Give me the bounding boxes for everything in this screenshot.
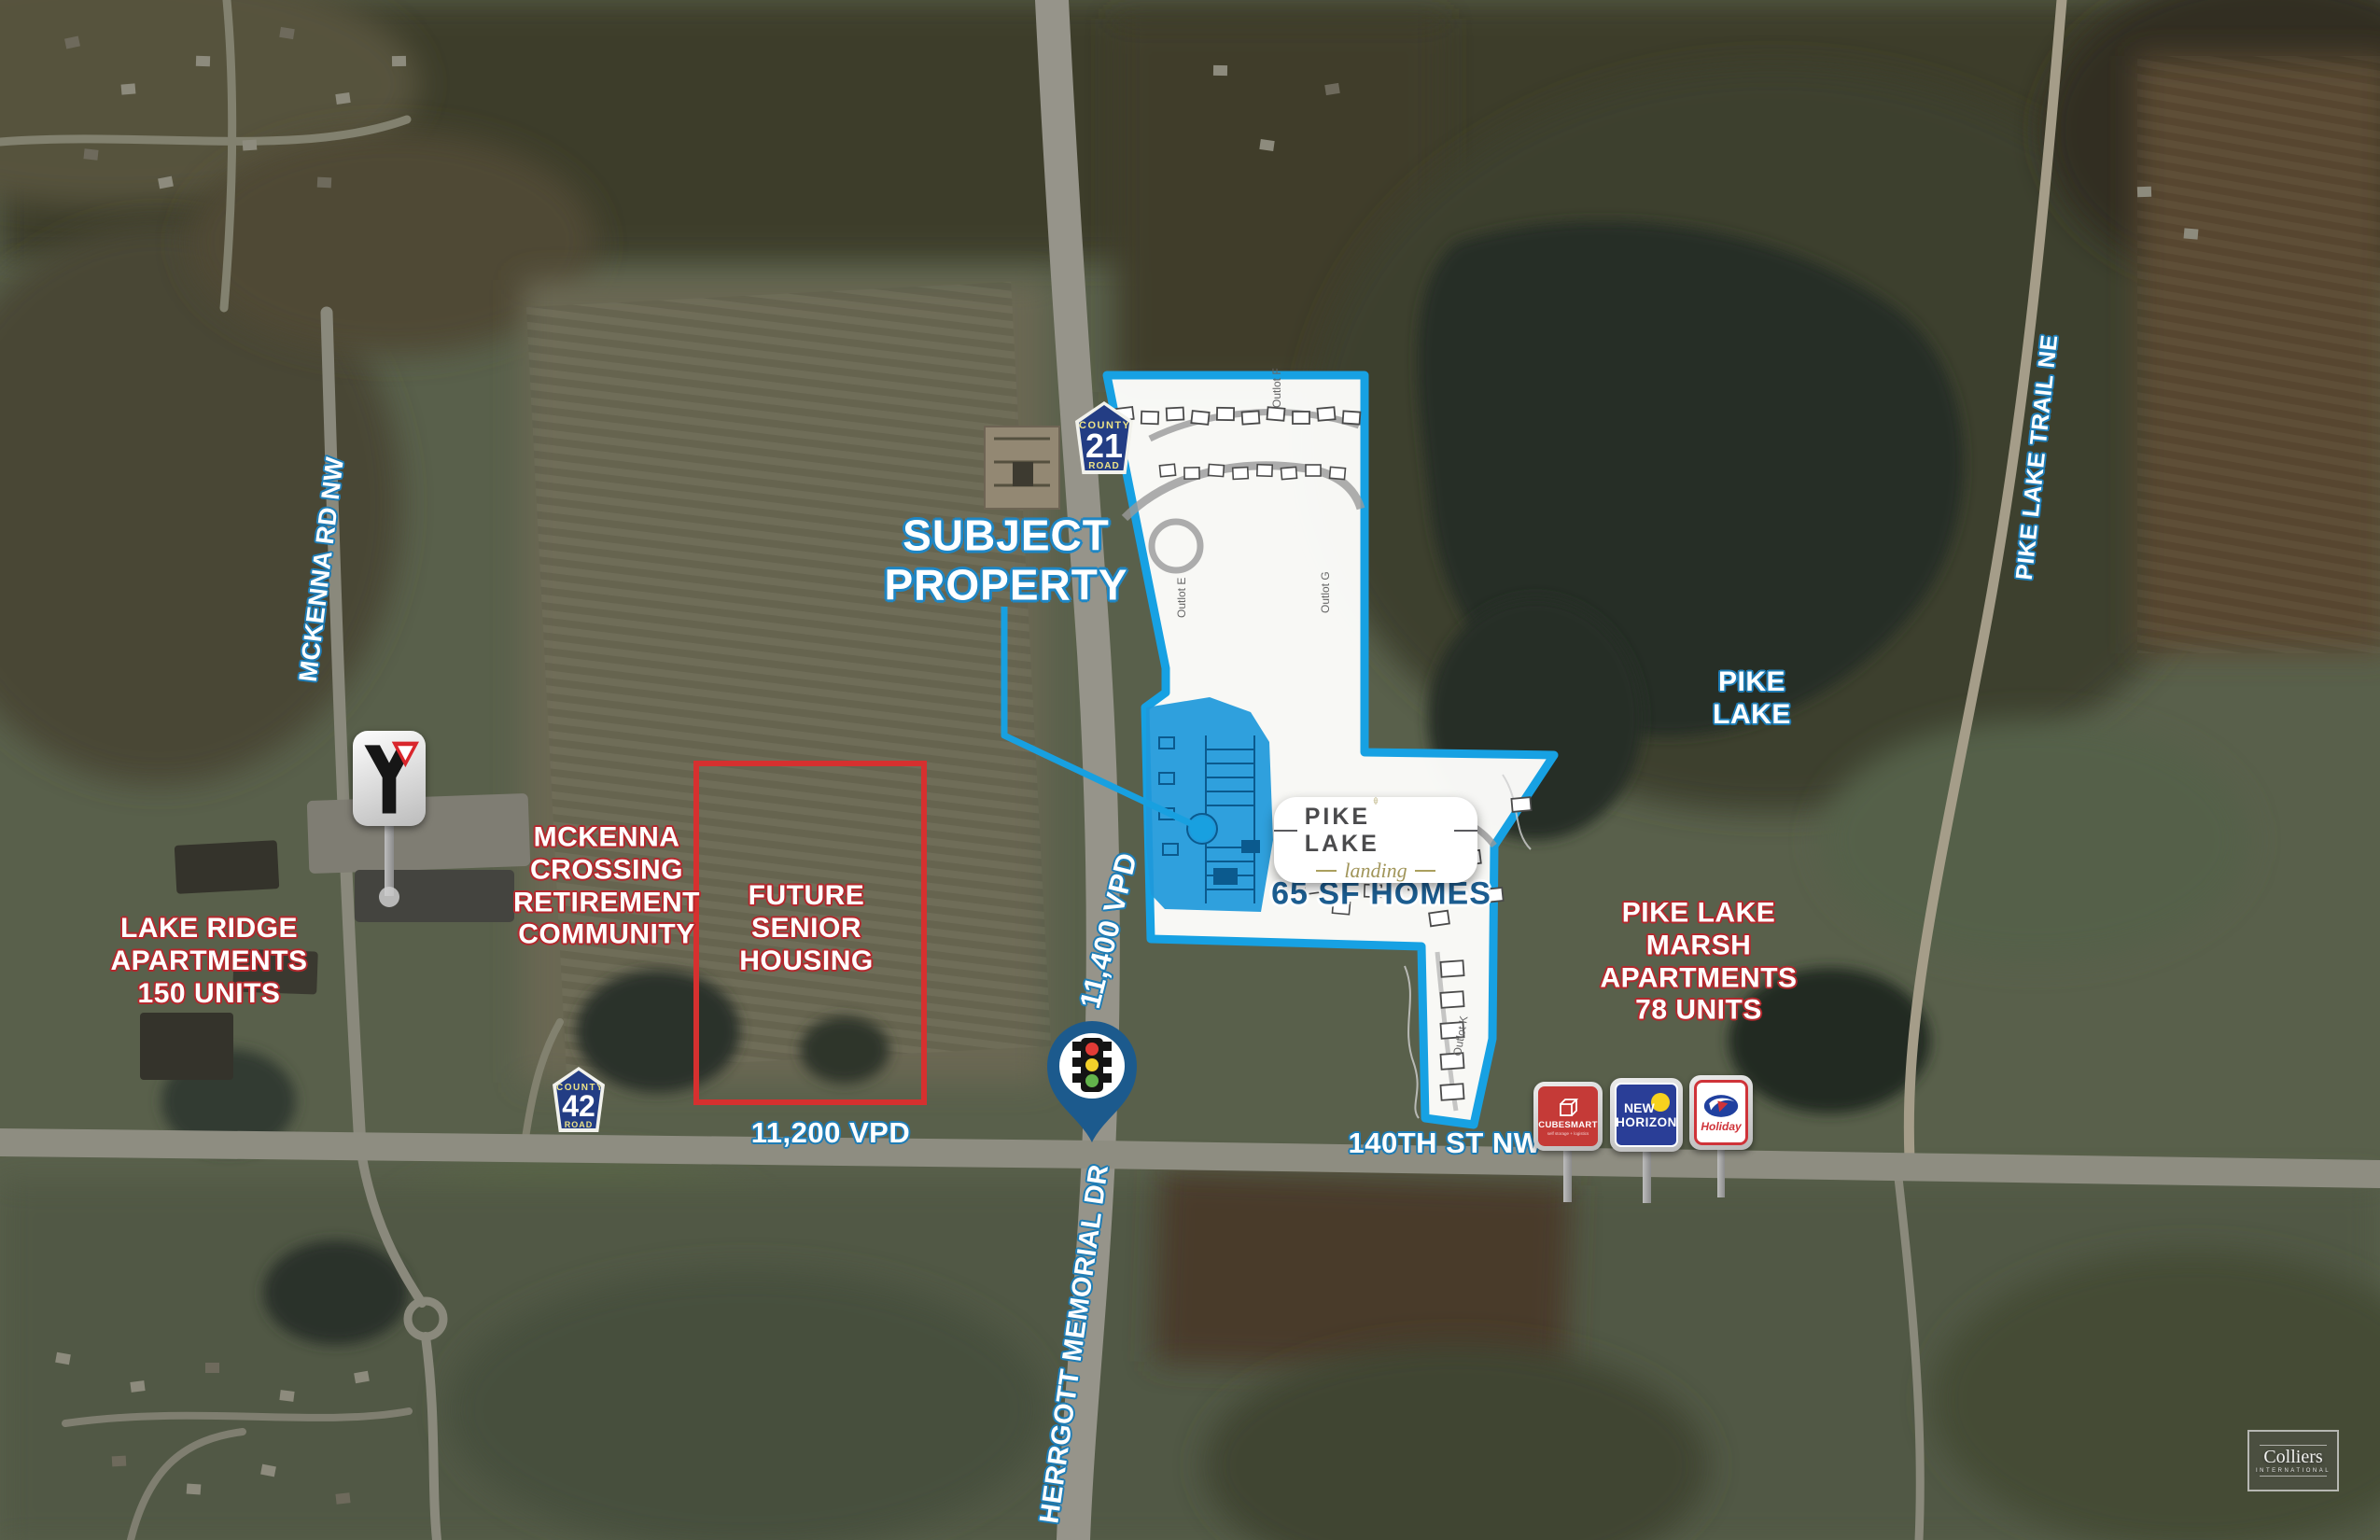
outlot-label: Outlot F (1270, 368, 1283, 408)
future-senior-housing-label: FUTURE SENIOR HOUSING (739, 880, 874, 977)
new-horizon-line2: HORIZON (1616, 1115, 1677, 1129)
new-horizon-line1: NEW (1624, 1100, 1655, 1115)
pike-lake-marsh-label: PIKE LAKE MARSH APARTMENTS 78 UNITS (1600, 897, 1797, 1027)
street-140th-label: 140TH ST NW (1348, 1127, 1541, 1160)
cubesmart-sign-post (1563, 1148, 1572, 1202)
watermark-sub: INTERNATIONAL (2256, 1468, 2331, 1474)
holiday-name: Holiday (1701, 1120, 1741, 1133)
logo-title: PIKE LAKE (1305, 804, 1448, 858)
watermark-name: Colliers (2263, 1448, 2322, 1466)
pike-lake-landing-logo: PIKE LAKE landing (1274, 797, 1477, 883)
holiday-emblem-icon (1702, 1092, 1740, 1120)
cubesmart-tagline: self storage + logistics (1547, 1131, 1589, 1136)
new-horizon-sign-post (1643, 1149, 1651, 1203)
colliers-watermark: Colliers INTERNATIONAL (2247, 1430, 2339, 1491)
cubesmart-sign: CUBESMART self storage + logistics (1533, 1082, 1603, 1151)
ymca-sign-base (379, 887, 399, 907)
shield-number: 21 (1079, 431, 1129, 461)
outlot-label: Outlot E (1175, 578, 1188, 618)
holiday-sign: Holiday (1689, 1075, 1753, 1150)
holiday-sign-post (1717, 1146, 1725, 1197)
cubesmart-cube-icon (1558, 1098, 1578, 1118)
outlot-label: Outlot G (1319, 571, 1332, 613)
logo-rule-right (1454, 830, 1477, 832)
shield-number: 42 (556, 1093, 601, 1120)
cubesmart-name: CUBESMART (1538, 1120, 1597, 1130)
ymca-sign-post (385, 825, 394, 896)
watermark-rule-bottom (2260, 1476, 2327, 1477)
ymca-logo-icon (353, 731, 426, 826)
logo-rule-left (1274, 830, 1297, 832)
lake-ridge-apartments-label: LAKE RIDGE APARTMENTS 150 UNITS (110, 913, 307, 1010)
logo-rule2-right (1415, 870, 1435, 872)
logo-script: landing (1344, 859, 1407, 883)
aerial-map: Outlot F Outlot E Outlot G Outlot K (0, 0, 2380, 1540)
subject-property-label: SUBJECT PROPERTY (884, 511, 1127, 611)
pike-lake-label: PIKE LAKE (1713, 666, 1791, 732)
vpd-140th-label: 11,200 VPD (751, 1116, 910, 1150)
new-horizon-sign: NEW HORIZON (1610, 1078, 1683, 1152)
watermark-rule-top (2260, 1445, 2327, 1446)
mckenna-crossing-label: MCKENNA CROSSING RETIREMENT COMMUNITY (513, 821, 700, 951)
logo-rule2-left (1316, 870, 1337, 872)
